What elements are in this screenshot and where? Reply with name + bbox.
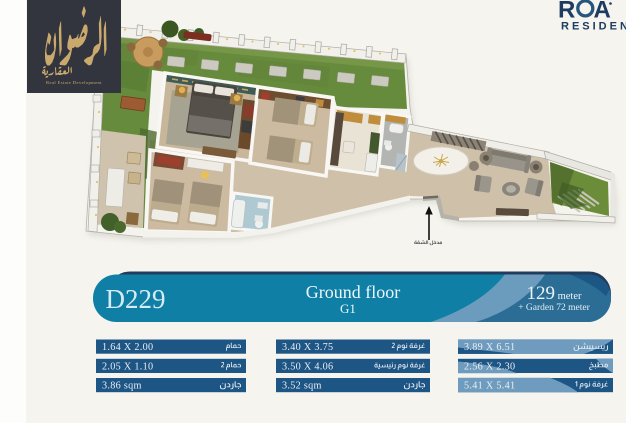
svg-text:2.05 X 1.10: 2.05 X 1.10 (102, 361, 153, 372)
svg-text:5.41 X 5.41: 5.41 X 5.41 (464, 381, 515, 392)
svg-text:D229: D229 (106, 284, 166, 314)
svg-text:3.52 sqm: 3.52 sqm (282, 381, 322, 392)
svg-text:3.86 sqm: 3.86 sqm (102, 381, 142, 392)
svg-text:3.40 X 3.75: 3.40 X 3.75 (282, 342, 333, 353)
svg-text:Real Estate Development: Real Estate Development (46, 80, 102, 85)
svg-text:3.89 X 6.51: 3.89 X 6.51 (464, 342, 515, 353)
svg-text:Ground floor: Ground floor (306, 282, 400, 302)
svg-text:2.56 X 2.30: 2.56 X 2.30 (464, 361, 515, 372)
svg-text:+ Garden 72 meter: + Garden 72 meter (518, 303, 590, 313)
svg-text:G1: G1 (340, 301, 356, 316)
svg-text:3.50 X 4.06: 3.50 X 4.06 (282, 361, 333, 372)
svg-text:1.64 X 2.00: 1.64 X 2.00 (102, 342, 153, 353)
svg-text:RESIDEN: RESIDEN (561, 21, 626, 33)
